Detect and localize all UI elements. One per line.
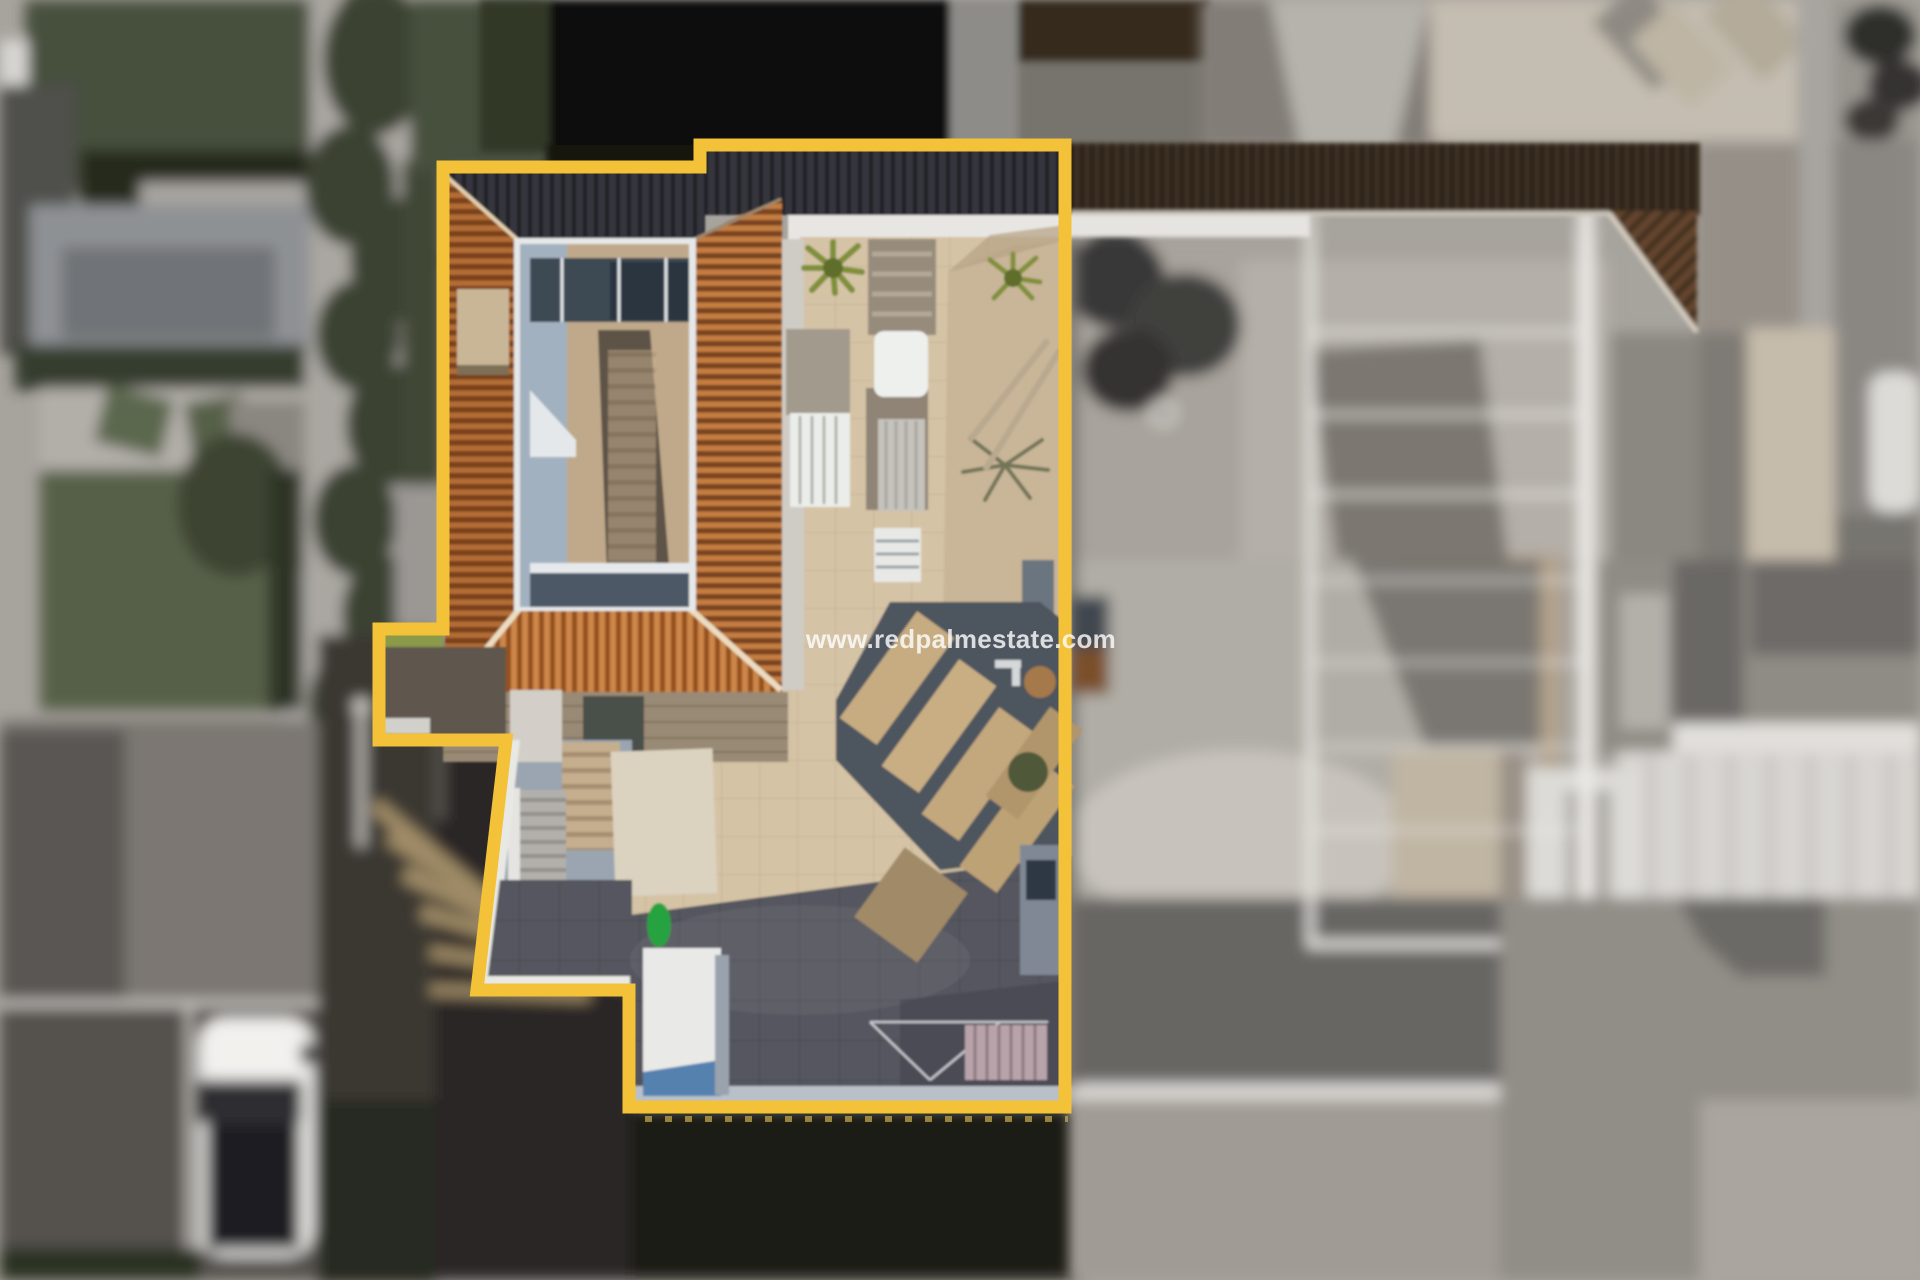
svg-text:www.redpalmestate.com: www.redpalmestate.com [805, 624, 1116, 654]
